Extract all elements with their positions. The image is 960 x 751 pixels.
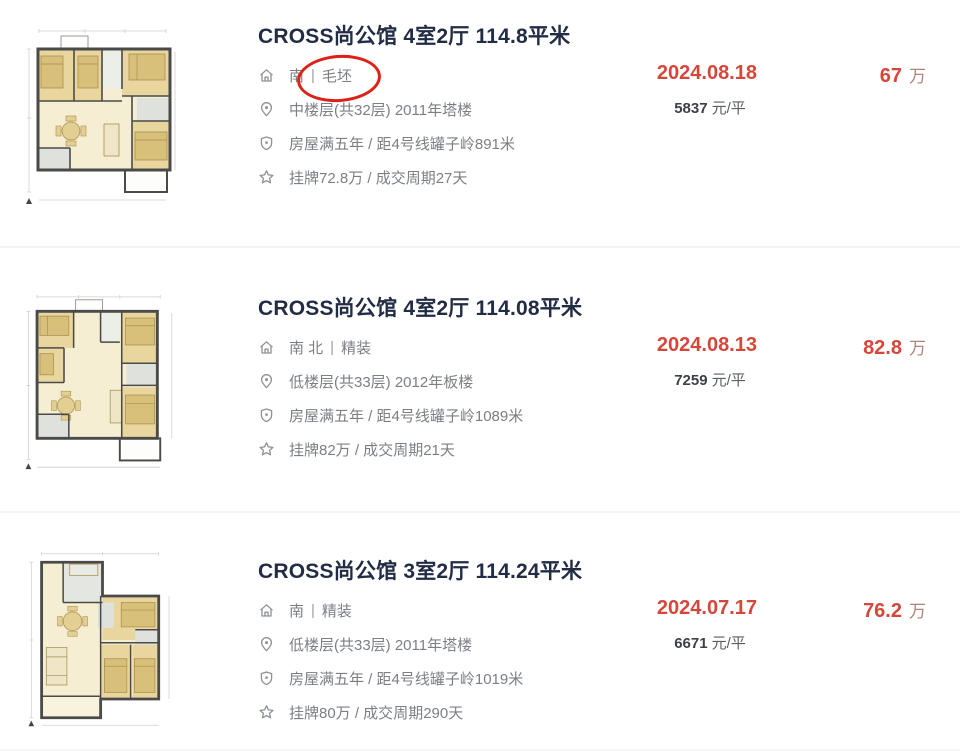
unit-price: 6671元/平 bbox=[640, 632, 780, 653]
location-pin-icon bbox=[258, 373, 275, 390]
home-icon bbox=[258, 67, 275, 84]
listing-cycle-text: 挂牌72.8万 / 成交周期27天 bbox=[289, 167, 467, 188]
floor-info-text: 低楼层(共33层) 2012年板楼 bbox=[289, 371, 473, 392]
location-pin-icon bbox=[258, 636, 275, 653]
star-icon bbox=[258, 704, 275, 721]
unit-price-value: 5837 bbox=[674, 100, 707, 117]
total-price-value: 82.8 bbox=[863, 337, 902, 359]
floor-plan-thumbnail[interactable] bbox=[25, 551, 180, 729]
tax-metro-text: 房屋满五年 / 距4号线罐子岭1019米 bbox=[289, 668, 523, 689]
deal-listing-card[interactable]: CROSS尚公馆 3室2厅 114.24平米 南 | 精装 低楼层(共33层) … bbox=[0, 513, 960, 751]
location-pin-icon bbox=[258, 101, 275, 118]
total-price: 67万 bbox=[880, 62, 926, 88]
unit-price-value: 7259 bbox=[674, 372, 707, 389]
separator: | bbox=[311, 602, 315, 619]
tax-metro-row: 房屋满五年 / 距4号线罐子岭891米 bbox=[258, 126, 515, 160]
home-icon bbox=[258, 602, 275, 619]
star-icon bbox=[258, 169, 275, 186]
shield-icon bbox=[258, 670, 275, 687]
floor-info-text: 低楼层(共33层) 2011年塔楼 bbox=[289, 634, 472, 655]
total-price: 82.8万 bbox=[863, 334, 926, 360]
unit-price-label: 元/平 bbox=[712, 635, 746, 652]
listing-cycle-text: 挂牌80万 / 成交周期290天 bbox=[289, 702, 463, 723]
separator: | bbox=[311, 67, 315, 84]
separator: | bbox=[330, 339, 334, 356]
unit-price-label: 元/平 bbox=[712, 100, 746, 117]
orientation-row: 南 北 | 精装 bbox=[258, 330, 523, 364]
shield-icon bbox=[258, 407, 275, 424]
deal-history-page: CROSS尚公馆 4室2厅 114.8平米 南 | 毛坯 中楼层(共32层) 2… bbox=[0, 0, 960, 751]
floor-info-row: 低楼层(共33层) 2012年板楼 bbox=[258, 364, 523, 398]
floor-plan-image bbox=[25, 551, 180, 729]
shield-icon bbox=[258, 135, 275, 152]
total-price-value: 67 bbox=[880, 65, 902, 87]
decoration-text: 精装 bbox=[341, 337, 371, 358]
floor-info-row: 中楼层(共32层) 2011年塔楼 bbox=[258, 92, 515, 126]
unit-price: 7259元/平 bbox=[640, 369, 780, 390]
orientation-row: 南 | 精装 bbox=[258, 593, 523, 627]
listing-cycle-row: 挂牌82万 / 成交周期21天 bbox=[258, 432, 523, 466]
orientation-text: 南 北 bbox=[289, 337, 323, 358]
listing-cycle-text: 挂牌82万 / 成交周期21天 bbox=[289, 439, 455, 460]
tax-metro-row: 房屋满五年 / 距4号线罐子岭1089米 bbox=[258, 398, 523, 432]
wan-label: 万 bbox=[909, 339, 926, 358]
total-price-value: 76.2 bbox=[863, 600, 902, 622]
unit-price-label: 元/平 bbox=[712, 372, 746, 389]
unit-price-value: 6671 bbox=[674, 635, 707, 652]
listing-title[interactable]: CROSS尚公馆 3室2厅 114.24平米 bbox=[258, 555, 582, 585]
tax-metro-text: 房屋满五年 / 距4号线罐子岭1089米 bbox=[289, 405, 523, 426]
floor-plan-thumbnail[interactable] bbox=[25, 294, 180, 472]
listing-details: 南 北 | 精装 低楼层(共33层) 2012年板楼 房屋满五年 / 距4号线罐… bbox=[258, 330, 523, 466]
deal-listing-card[interactable]: CROSS尚公馆 4室2厅 114.08平米 南 北 | 精装 低楼层(共33层… bbox=[0, 248, 960, 513]
wan-label: 万 bbox=[909, 67, 926, 86]
listing-title[interactable]: CROSS尚公馆 4室2厅 114.08平米 bbox=[258, 292, 582, 322]
deal-date: 2024.08.13 bbox=[617, 334, 757, 357]
tax-metro-text: 房屋满五年 / 距4号线罐子岭891米 bbox=[289, 133, 515, 154]
floor-info-text: 中楼层(共32层) 2011年塔楼 bbox=[289, 99, 472, 120]
unit-price: 5837元/平 bbox=[640, 97, 780, 118]
orientation-text: 南 bbox=[289, 600, 304, 621]
wan-label: 万 bbox=[909, 602, 926, 621]
listing-details: 南 | 精装 低楼层(共33层) 2011年塔楼 房屋满五年 / 距4号线罐子岭… bbox=[258, 593, 523, 729]
tax-metro-row: 房屋满五年 / 距4号线罐子岭1019米 bbox=[258, 661, 523, 695]
orientation-row: 南 | 毛坯 bbox=[258, 58, 515, 92]
floor-plan-image bbox=[25, 294, 180, 472]
listing-cycle-row: 挂牌80万 / 成交周期290天 bbox=[258, 695, 523, 729]
star-icon bbox=[258, 441, 275, 458]
deal-date: 2024.08.18 bbox=[617, 62, 757, 85]
orientation-text: 南 bbox=[289, 65, 304, 86]
deal-date: 2024.07.17 bbox=[617, 597, 757, 620]
floor-plan-thumbnail[interactable] bbox=[25, 28, 180, 206]
home-icon bbox=[258, 339, 275, 356]
decoration-text: 毛坯 bbox=[322, 68, 352, 85]
floor-info-row: 低楼层(共33层) 2011年塔楼 bbox=[258, 627, 523, 661]
listing-cycle-row: 挂牌72.8万 / 成交周期27天 bbox=[258, 160, 515, 194]
listing-details: 南 | 毛坯 中楼层(共32层) 2011年塔楼 房屋满五年 / 距4号线罐子岭… bbox=[258, 58, 515, 194]
floor-plan-image bbox=[25, 28, 180, 206]
listing-title[interactable]: CROSS尚公馆 4室2厅 114.8平米 bbox=[258, 20, 570, 50]
deal-listing-card[interactable]: CROSS尚公馆 4室2厅 114.8平米 南 | 毛坯 中楼层(共32层) 2… bbox=[0, 0, 960, 248]
total-price: 76.2万 bbox=[863, 597, 926, 623]
decoration-text: 精装 bbox=[322, 600, 352, 621]
